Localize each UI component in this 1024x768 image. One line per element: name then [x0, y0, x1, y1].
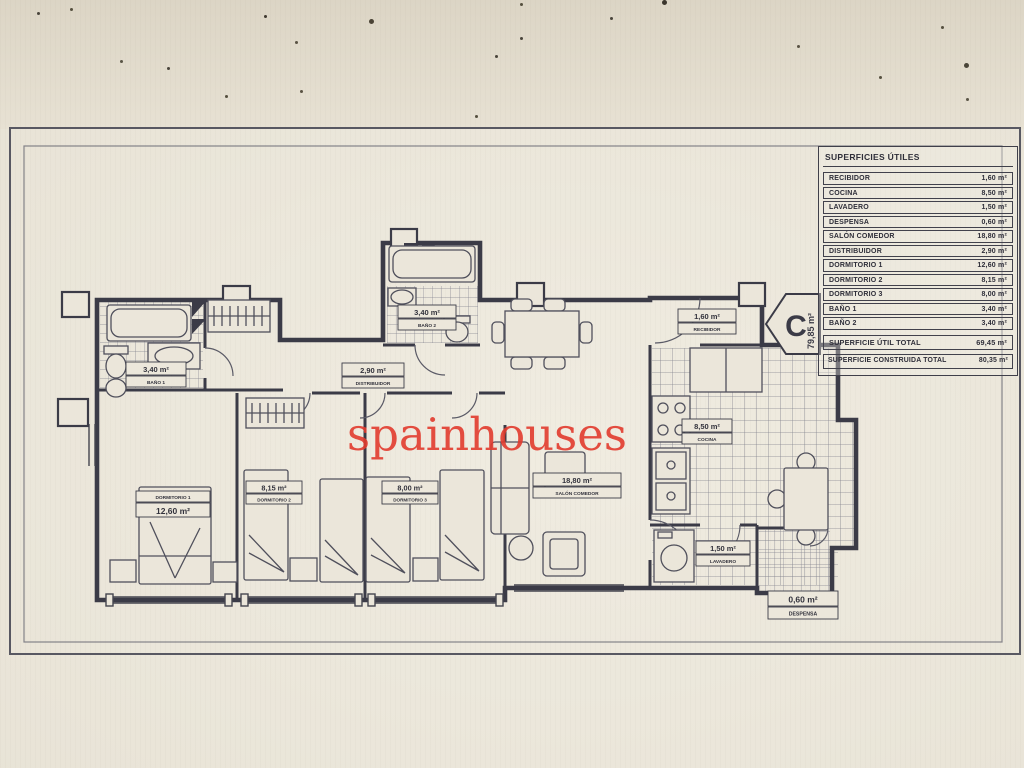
bidet-icon	[106, 379, 126, 397]
nightstand-icon	[110, 560, 136, 582]
svg-text:COCINA: COCINA	[698, 437, 717, 443]
laundry-fixtures	[654, 530, 694, 582]
surfaces-table-title: SUPERFICIES ÚTILES	[823, 150, 1013, 167]
door-bath1	[205, 348, 233, 376]
label-recibidor: 1,60 m² RECIBIDOR	[678, 309, 736, 334]
svg-text:3,40 m²: 3,40 m²	[414, 308, 440, 317]
table-row: LAVADERO1,50 m²	[823, 201, 1013, 214]
svg-text:DISTRIBUIDOR: DISTRIBUIDOR	[356, 381, 391, 387]
bathtub-icon	[107, 305, 191, 341]
svg-text:1,50 m²: 1,50 m²	[710, 544, 736, 553]
dining-set	[492, 299, 592, 369]
table-row: RECIBIDOR1,60 m²	[823, 172, 1013, 185]
svg-text:18,80 m²: 18,80 m²	[562, 476, 593, 485]
nightstand-icon	[213, 562, 237, 582]
toilet-icon	[104, 346, 128, 378]
svg-text:0,60 m²: 0,60 m²	[788, 595, 817, 605]
svg-text:BAÑO 2: BAÑO 2	[418, 322, 436, 329]
svg-text:1,60 m²: 1,60 m²	[694, 312, 720, 321]
label-cocina: 8,50 m² COCINA	[682, 419, 732, 444]
svg-text:BAÑO 1: BAÑO 1	[147, 379, 165, 386]
sink-icon	[388, 288, 416, 306]
wardrobes	[208, 300, 304, 428]
table-row: BAÑO 13,40 m²	[823, 303, 1013, 316]
table-row-total: SUPERFICIE ÚTIL TOTAL69,45 m²	[823, 335, 1013, 350]
svg-text:3,40 m²: 3,40 m²	[143, 365, 169, 374]
chair-icon	[492, 322, 504, 343]
table-row-built-total: SUPERFICIE CONSTRUIDA TOTAL80,35 m²	[823, 354, 1013, 369]
nightstand-icon	[290, 558, 317, 581]
table-row: BAÑO 23,40 m²	[823, 317, 1013, 330]
label-distribuidor: 2,90 m² DISTRIBUIDOR	[342, 363, 404, 388]
chair-icon	[544, 299, 565, 311]
unit-letter: C	[785, 310, 807, 343]
svg-text:12,60 m²: 12,60 m²	[156, 506, 190, 516]
svg-text:DESPENSA: DESPENSA	[789, 612, 818, 618]
nook-tiles	[838, 420, 856, 546]
chair-icon	[580, 322, 592, 343]
single-bed-icon	[320, 479, 363, 582]
wardrobe-icon	[208, 300, 270, 332]
chair-icon	[511, 357, 532, 369]
kitchen-sink-icon	[652, 448, 690, 514]
label-salon: 18,80 m² SALÓN COMEDOR	[533, 473, 621, 498]
table-row: DESPENSA0,60 m²	[823, 216, 1013, 229]
label-bano1: 3,40 m² BAÑO 1	[126, 362, 186, 387]
washing-machine-icon	[654, 530, 694, 582]
single-bed-icon	[440, 470, 484, 580]
unit-area: 79,85 m²	[806, 313, 816, 349]
svg-text:DORMITORIO 2: DORMITORIO 2	[257, 498, 291, 503]
table-row: DORMITORIO 28,15 m²	[823, 274, 1013, 287]
table-row: SALÓN COMEDOR18,80 m²	[823, 230, 1013, 243]
svg-text:8,00 m²: 8,00 m²	[397, 484, 423, 493]
wardrobe-icon	[246, 398, 304, 428]
label-lavadero: 1,50 m² LAVADERO	[696, 541, 750, 566]
svg-text:DORMITORIO 3: DORMITORIO 3	[393, 498, 427, 503]
armchair-icon	[543, 532, 585, 576]
label-dormitorio1: DORMITORIO 1 12,60 m²	[136, 491, 210, 517]
table-row: COCINA8,50 m²	[823, 187, 1013, 200]
bathtub-icon	[389, 246, 475, 282]
pantry-tiles	[759, 530, 830, 591]
surfaces-table: SUPERFICIES ÚTILES RECIBIDOR1,60 m² COCI…	[818, 146, 1018, 376]
svg-text:DORMITORIO 1: DORMITORIO 1	[155, 495, 190, 501]
svg-text:2,90 m²: 2,90 m²	[360, 366, 386, 375]
svg-text:8,15 m²: 8,15 m²	[261, 484, 287, 493]
label-despensa: 0,60 m² DESPENSA	[768, 591, 838, 619]
door-bath2	[415, 345, 445, 375]
label-bano2: 3,40 m² BAÑO 2	[398, 305, 456, 330]
table-row: DORMITORIO 112,60 m²	[823, 259, 1013, 272]
label-dormitorio3: 8,00 m² DORMITORIO 3	[382, 481, 438, 504]
chair-icon	[511, 299, 532, 311]
table-row: DORMITORIO 38,00 m²	[823, 288, 1013, 301]
side-table-icon	[509, 536, 533, 560]
table-row: DISTRIBUIDOR2,90 m²	[823, 245, 1013, 258]
floor-plan-drawing: C 79,85 m² 3,40 m² BAÑO 1 3,40 m² BAÑO 2…	[0, 0, 1024, 768]
dining-table-icon	[505, 311, 579, 357]
watermark: spainhouses	[347, 412, 627, 457]
nightstand-icon	[413, 558, 438, 581]
svg-text:LAVADERO: LAVADERO	[710, 559, 736, 565]
svg-text:8,50 m²: 8,50 m²	[694, 422, 720, 431]
label-dormitorio2: 8,15 m² DORMITORIO 2	[246, 481, 302, 504]
svg-text:RECIBIDOR: RECIBIDOR	[694, 327, 721, 333]
chair-icon	[544, 357, 565, 369]
